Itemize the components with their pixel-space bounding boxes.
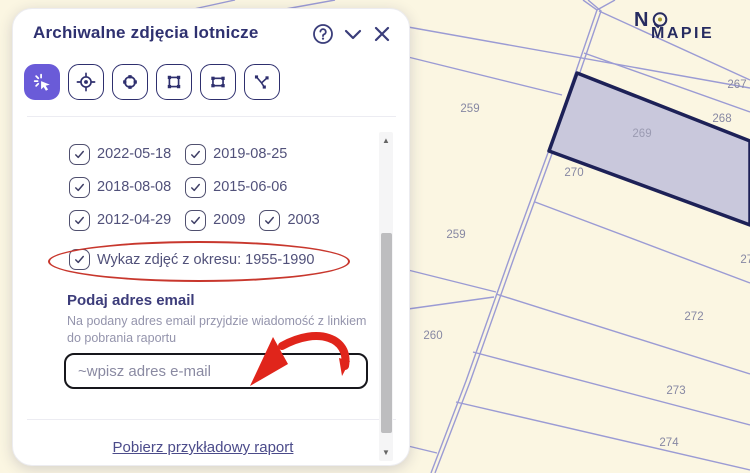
checkbox-checked-icon [259, 210, 280, 231]
date-label: 2003 [287, 212, 319, 228]
tool-draw-rectangle-button[interactable] [156, 64, 192, 100]
date-checkbox-item[interactable]: 2012-04-29 [69, 210, 171, 231]
parcel-label: 267 [727, 79, 746, 91]
circle-nodes-icon [119, 71, 141, 93]
checkbox-checked-icon [185, 144, 206, 165]
checkbox-checked-icon [69, 144, 90, 165]
date-checkbox-item[interactable]: 2009 [185, 210, 245, 231]
parcel-label: 274 [659, 437, 679, 449]
rectangle-nodes-icon [163, 71, 185, 93]
tool-transform-shape-button[interactable] [200, 64, 236, 100]
report-option-checkbox[interactable]: Wykaz zdjęć z okresu: 1955-1990 [69, 249, 314, 270]
tool-locate-point-button[interactable] [68, 64, 104, 100]
parcel-label: 269 [632, 128, 651, 140]
date-checkbox-item[interactable]: 2003 [259, 210, 319, 231]
target-icon [75, 71, 97, 93]
divider [27, 419, 396, 420]
divider [27, 116, 396, 117]
sample-report-link[interactable]: Pobierz przykładowy raport [113, 439, 294, 456]
parcel-label: 259 [460, 103, 479, 115]
logo-letter-n: N [634, 10, 649, 30]
date-checkbox-item[interactable]: 2018-08-08 [69, 177, 171, 198]
scrollbar-track[interactable]: ▲ ▼ [379, 132, 393, 461]
date-label: 2012-04-29 [97, 212, 171, 228]
scroll-down-arrow-icon[interactable]: ▼ [379, 446, 393, 459]
parcel-label: 272 [684, 311, 703, 323]
date-checkbox-item[interactable]: 2022-05-18 [69, 144, 171, 165]
tool-edit-circle-button[interactable] [112, 64, 148, 100]
archival-photos-panel: Archiwalne zdjęcia lotnicze [12, 8, 410, 466]
parcel-label: 273 [666, 385, 685, 397]
scrollbar-thumb[interactable] [381, 233, 392, 433]
email-description: Na podany adres email przyjdzie wiadomoś… [67, 313, 367, 347]
panel-title: Archiwalne zdjęcia lotnicze [33, 23, 259, 43]
polyline-nodes-icon [251, 71, 273, 93]
report-option-label: Wykaz zdjęć z okresu: 1955-1990 [97, 252, 314, 268]
tool-draw-polyline-button[interactable] [244, 64, 280, 100]
date-label: 2009 [213, 212, 245, 228]
date-label: 2015-06-06 [213, 179, 287, 195]
date-row: 2012-04-2920092003 [69, 209, 320, 231]
parcel-label: 259 [446, 229, 465, 241]
date-checkbox-item[interactable]: 2019-08-25 [185, 144, 287, 165]
checkbox-checked-icon [69, 177, 90, 198]
date-label: 2018-08-08 [97, 179, 171, 195]
toolbar [24, 64, 280, 100]
collapse-button[interactable] [342, 27, 364, 43]
parcel-label: 270 [564, 167, 583, 179]
checkbox-checked-icon [185, 177, 206, 198]
question-icon [312, 23, 334, 45]
date-row: 2018-08-082015-06-06 [69, 176, 320, 198]
transform-handles-icon [207, 71, 229, 93]
checkbox-checked-icon [185, 210, 206, 231]
close-button[interactable] [372, 24, 392, 44]
report-option-row: Wykaz zdjęć z okresu: 1955-1990 [69, 249, 314, 271]
date-row: 2022-05-182019-08-25 [69, 143, 320, 165]
tool-select-click-button[interactable] [24, 64, 60, 100]
help-button[interactable] [312, 23, 334, 45]
date-label: 2019-08-25 [213, 146, 287, 162]
date-checkbox-list: 2022-05-182019-08-252018-08-082015-06-06… [69, 143, 320, 242]
cursor-click-icon [31, 71, 53, 93]
parcel-label: 271 [740, 254, 750, 266]
chevron-down-icon [342, 27, 364, 43]
email-heading: Podaj adres email [67, 292, 195, 309]
checkbox-checked-icon [69, 210, 90, 231]
logo-word-mapie: MAPIE [651, 26, 744, 42]
email-input[interactable] [64, 353, 368, 389]
scroll-up-arrow-icon[interactable]: ▲ [379, 134, 393, 147]
parcel-label: 268 [712, 113, 731, 125]
date-label: 2022-05-18 [97, 146, 171, 162]
close-icon [372, 24, 392, 44]
checkbox-checked-icon [69, 249, 90, 270]
namapie-logo: N MAPIE [634, 10, 744, 54]
date-checkbox-item[interactable]: 2015-06-06 [185, 177, 287, 198]
parcel-label: 260 [423, 330, 442, 342]
